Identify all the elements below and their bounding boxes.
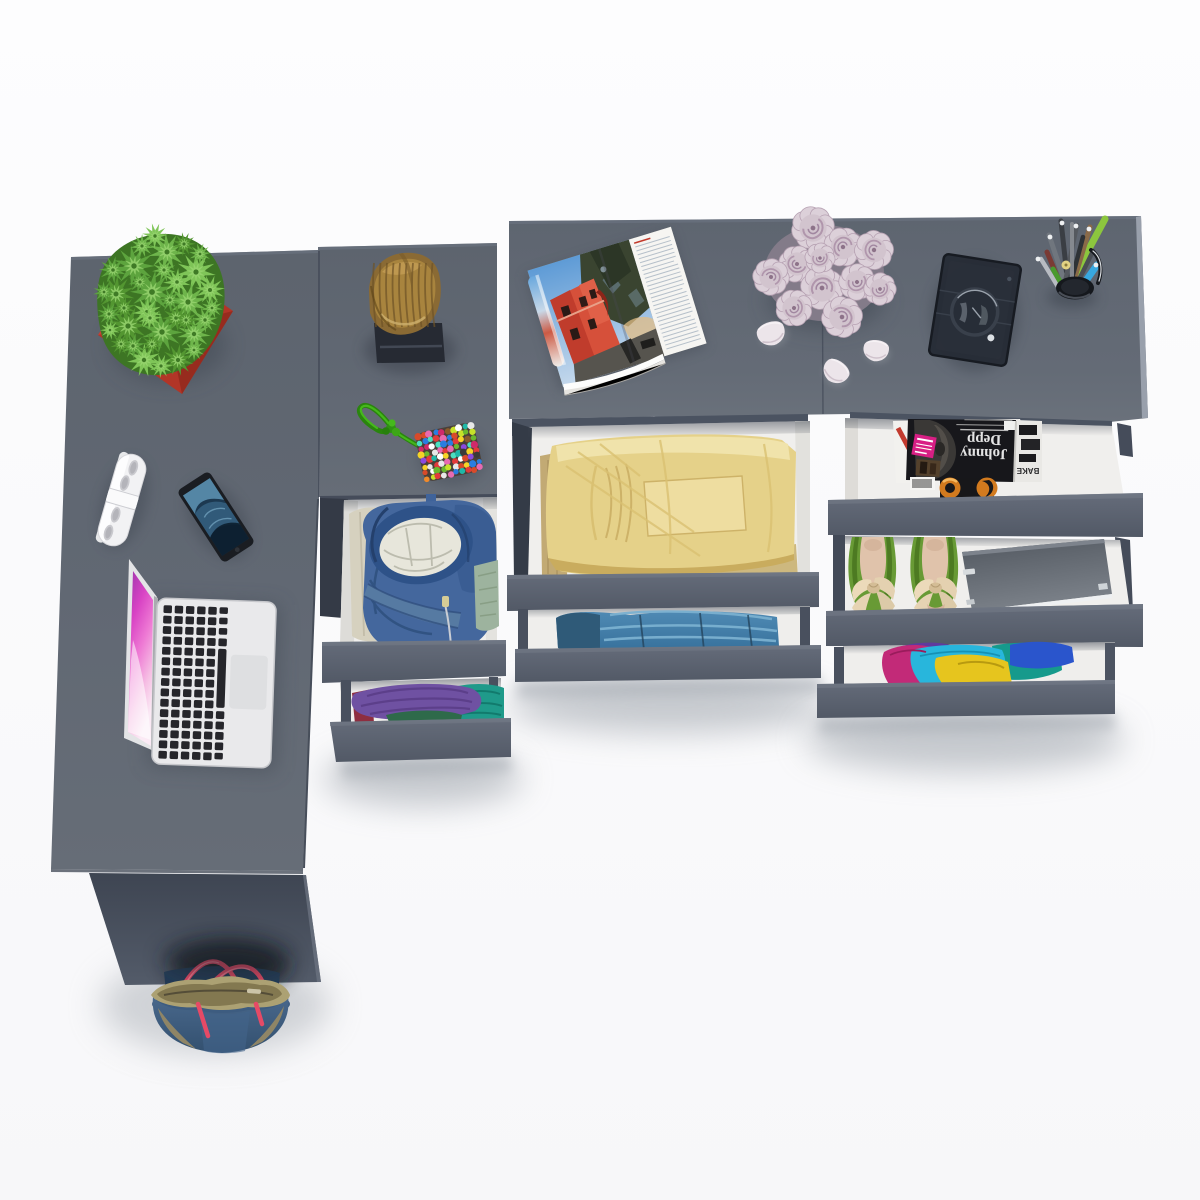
svg-text:BAKE: BAKE (1016, 466, 1039, 475)
svg-text:Depp: Depp (967, 431, 1001, 448)
